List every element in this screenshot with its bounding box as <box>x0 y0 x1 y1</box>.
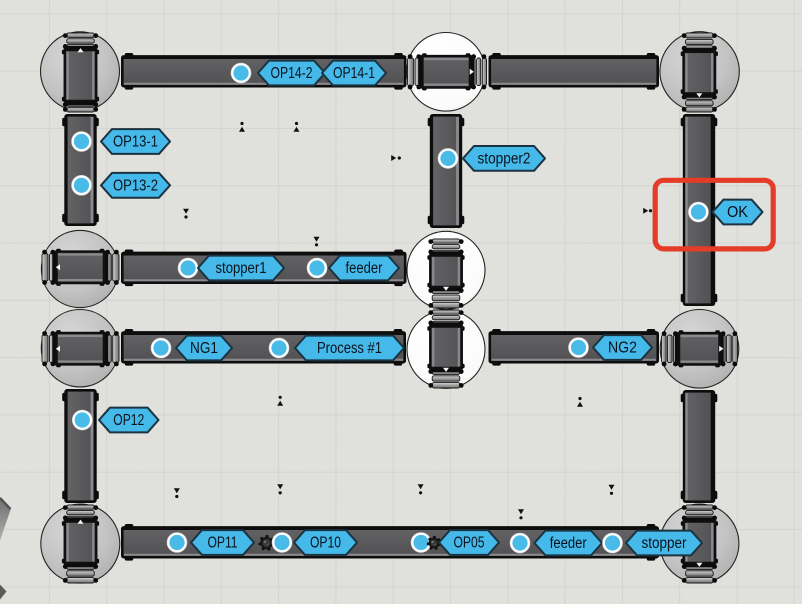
svg-text:OP14-2: OP14-2 <box>271 65 313 82</box>
svg-text:stopper2: stopper2 <box>478 151 531 168</box>
svg-text:feeder: feeder <box>550 535 587 552</box>
svg-text:OP05: OP05 <box>454 535 485 552</box>
svg-text:OK: OK <box>727 204 749 221</box>
svg-text:OP13-2: OP13-2 <box>113 178 158 195</box>
svg-text:stopper: stopper <box>642 535 687 552</box>
svg-text:NG2: NG2 <box>608 340 637 357</box>
svg-text:OP12: OP12 <box>113 412 144 429</box>
svg-text:OP11: OP11 <box>208 535 238 552</box>
svg-text:Process #1: Process #1 <box>317 340 382 357</box>
svg-text:OP13-1: OP13-1 <box>113 134 158 151</box>
svg-text:OP10: OP10 <box>310 535 341 552</box>
svg-text:OP14-1: OP14-1 <box>333 65 375 82</box>
svg-text:stopper1: stopper1 <box>216 260 267 277</box>
svg-text:NG1: NG1 <box>190 340 218 357</box>
svg-text:feeder: feeder <box>346 260 383 277</box>
